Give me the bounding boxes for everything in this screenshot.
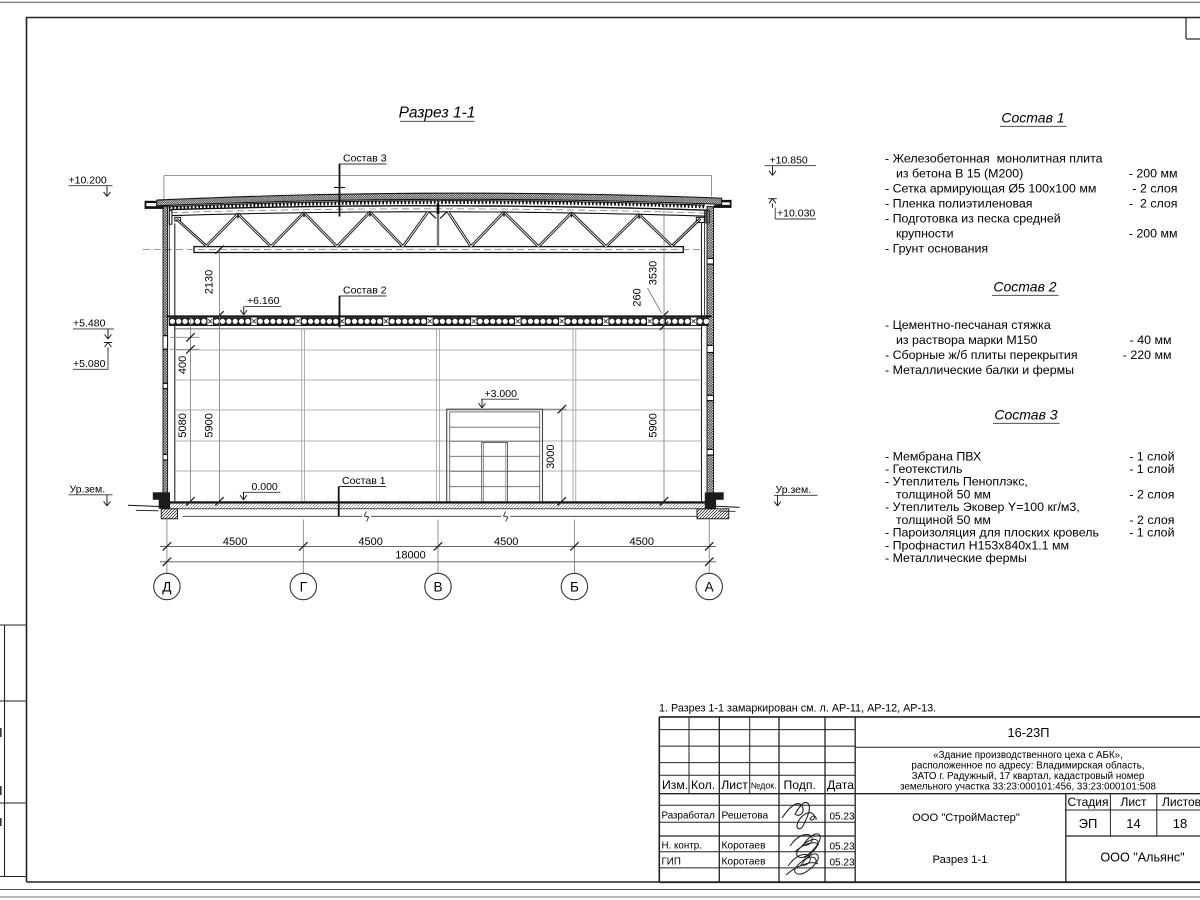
- svg-text:«Здание производственного цеха: «Здание производственного цеха с АБК»,: [933, 750, 1123, 761]
- svg-text:4500: 4500: [358, 536, 382, 548]
- svg-text:Н. контр.: Н. контр.: [662, 841, 702, 852]
- svg-text:Ур.зем.: Ур.зем.: [70, 483, 106, 495]
- svg-text:- 40 мм: - 40 мм: [1130, 333, 1172, 347]
- svg-text:- Сетка армирующая Ø5 100х100: - Сетка армирующая Ø5 100х100 мм: [885, 181, 1096, 195]
- svg-text:14: 14: [1126, 816, 1140, 831]
- svg-text:земельного участка 33:23:00010: земельного участка 33:23:000101:456, 33:…: [900, 781, 1156, 792]
- svg-text:Разрез 1-1: Разрез 1-1: [933, 854, 988, 866]
- svg-text:0.000: 0.000: [252, 481, 278, 493]
- svg-text:+10.200: +10.200: [69, 174, 107, 186]
- svg-text:400: 400: [177, 356, 189, 374]
- svg-text:18000: 18000: [395, 550, 426, 562]
- svg-text:Г: Г: [300, 579, 308, 594]
- svg-text:- Металлические фермы: - Металлические фермы: [885, 551, 1027, 565]
- svg-text:Подп.: Подп.: [784, 778, 816, 792]
- svg-text:ООО "Альянс": ООО "Альянс": [1100, 851, 1184, 865]
- svg-text:Состав 1: Состав 1: [342, 475, 386, 487]
- svg-text:Б: Б: [570, 579, 579, 594]
- svg-text:+5.080: +5.080: [73, 358, 106, 370]
- svg-text:4500: 4500: [223, 536, 247, 548]
- svg-text:Коротаев: Коротаев: [722, 857, 766, 868]
- svg-text:260: 260: [632, 288, 644, 306]
- svg-text:+10.850: +10.850: [770, 154, 808, 166]
- svg-text:Листов: Листов: [1162, 795, 1200, 809]
- svg-text:+5.480: +5.480: [73, 317, 106, 329]
- svg-text:Состав 1: Состав 1: [1001, 110, 1064, 126]
- svg-text:крупности: крупности: [896, 227, 954, 241]
- svg-text:4500: 4500: [630, 536, 654, 548]
- svg-text:+10.030: +10.030: [777, 208, 815, 220]
- svg-text:Дата: Дата: [827, 778, 854, 792]
- svg-text:05.23: 05.23: [830, 812, 855, 823]
- svg-text:- Пленка полиэтиленовая: - Пленка полиэтиленовая: [885, 197, 1033, 211]
- svg-text:Лист: Лист: [1120, 795, 1147, 809]
- svg-text:5080: 5080: [177, 413, 189, 437]
- svg-text:16-23П: 16-23П: [1008, 725, 1050, 740]
- svg-text:- 220 мм: - 220 мм: [1123, 348, 1172, 362]
- svg-text:из раствора марки М150: из раствора марки М150: [896, 333, 1037, 347]
- svg-text:Состав 3: Состав 3: [343, 153, 387, 165]
- svg-text:05.23: 05.23: [830, 858, 855, 869]
- svg-text:2130: 2130: [203, 270, 215, 294]
- svg-text:- 1 слой: - 1 слой: [1129, 526, 1174, 540]
- svg-text:расположенное по адресу: Влади: расположенное по адресу: Владимирская об…: [911, 760, 1144, 771]
- svg-text:- 2 слоя: - 2 слоя: [1129, 197, 1178, 211]
- svg-text:ЗАТО г. Радужный, 17 квартал,: ЗАТО г. Радужный, 17 квартал, кадастровы…: [912, 771, 1145, 782]
- svg-text:ЭП: ЭП: [1079, 816, 1098, 831]
- svg-text:18: 18: [1173, 816, 1187, 831]
- svg-text:Лист: Лист: [721, 778, 748, 792]
- svg-text:Состав 3: Состав 3: [994, 407, 1057, 423]
- svg-text:Решетова: Решетова: [722, 811, 769, 822]
- svg-text:Кол.: Кол.: [691, 778, 715, 792]
- svg-text:Состав 2: Состав 2: [343, 285, 387, 297]
- svg-text:- 200 мм: - 200 мм: [1129, 166, 1178, 180]
- svg-text:- Грунт основания: - Грунт основания: [885, 242, 988, 256]
- svg-text:В: В: [433, 579, 442, 594]
- svg-text:Разрез 1-1: Разрез 1-1: [399, 105, 476, 122]
- svg-text:- 2 слоя: - 2 слоя: [1129, 488, 1174, 502]
- svg-text:Ур.зем.: Ур.зем.: [776, 484, 812, 496]
- svg-text:Стадия: Стадия: [1068, 795, 1109, 809]
- svg-text:1. Разрез 1-1 замаркирован см.: 1. Разрез 1-1 замаркирован см. л. АР-11,…: [659, 703, 936, 715]
- svg-text:- 2 слоя: - 2 слоя: [1132, 181, 1177, 195]
- svg-text:- Железобетонная монолитная п: - Железобетонная монолитная плита: [885, 151, 1103, 165]
- svg-text:- Металлические балки и фермы: - Металлические балки и фермы: [885, 363, 1074, 377]
- svg-text:- 200 мм: - 200 мм: [1129, 227, 1178, 241]
- svg-text:+3.000: +3.000: [485, 388, 518, 400]
- svg-text:Изм.: Изм.: [662, 778, 688, 792]
- svg-text:Состав 2: Состав 2: [993, 279, 1056, 295]
- svg-text:А: А: [705, 579, 715, 594]
- svg-text:5900: 5900: [648, 413, 660, 437]
- svg-text:- Подготовка из песка средней: - Подготовка из песка средней: [885, 212, 1061, 226]
- svg-text:3000: 3000: [545, 444, 557, 468]
- svg-text:3530: 3530: [648, 261, 660, 285]
- svg-text:- Цементно-песчаная стяжка: - Цементно-песчаная стяжка: [885, 318, 1051, 332]
- svg-text:Д: Д: [162, 579, 171, 594]
- svg-text:4500: 4500: [494, 536, 518, 548]
- svg-text:ООО "СтройМастер": ООО "СтройМастер": [912, 812, 1020, 824]
- svg-text:05.23: 05.23: [830, 842, 855, 853]
- svg-text:- 1 слой: - 1 слой: [1129, 462, 1174, 476]
- svg-text:Коротаев: Коротаев: [722, 841, 766, 852]
- svg-text:Разработал: Разработал: [662, 811, 716, 822]
- svg-text:- Сборные ж/б плиты перекрытия: - Сборные ж/б плиты перекрытия: [885, 348, 1078, 362]
- svg-text:№док.: №док.: [751, 781, 777, 791]
- svg-text:из бетона В 15 (М200): из бетона В 15 (М200): [896, 166, 1023, 180]
- svg-text:ГИП: ГИП: [662, 857, 681, 868]
- svg-text:5900: 5900: [203, 413, 215, 437]
- svg-text:+6.160: +6.160: [247, 295, 280, 307]
